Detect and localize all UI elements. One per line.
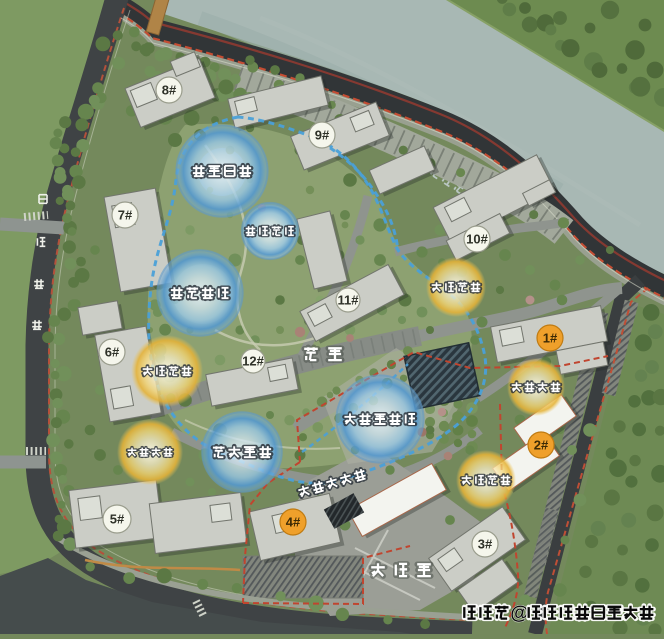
svg-text:1#: 1# — [543, 331, 558, 346]
svg-text:9#: 9# — [315, 128, 330, 143]
svg-text:2#: 2# — [534, 438, 549, 453]
svg-text:@: @ — [510, 603, 529, 624]
svg-text:5#: 5# — [110, 512, 125, 527]
svg-text:11#: 11# — [338, 293, 360, 308]
svg-text:6#: 6# — [105, 345, 120, 360]
svg-text:8#: 8# — [162, 83, 177, 98]
svg-text:7#: 7# — [118, 208, 133, 223]
svg-text:12#: 12# — [242, 354, 264, 369]
svg-text:10#: 10# — [466, 232, 488, 247]
svg-text:4#: 4# — [286, 515, 301, 530]
svg-text:3#: 3# — [478, 537, 493, 552]
